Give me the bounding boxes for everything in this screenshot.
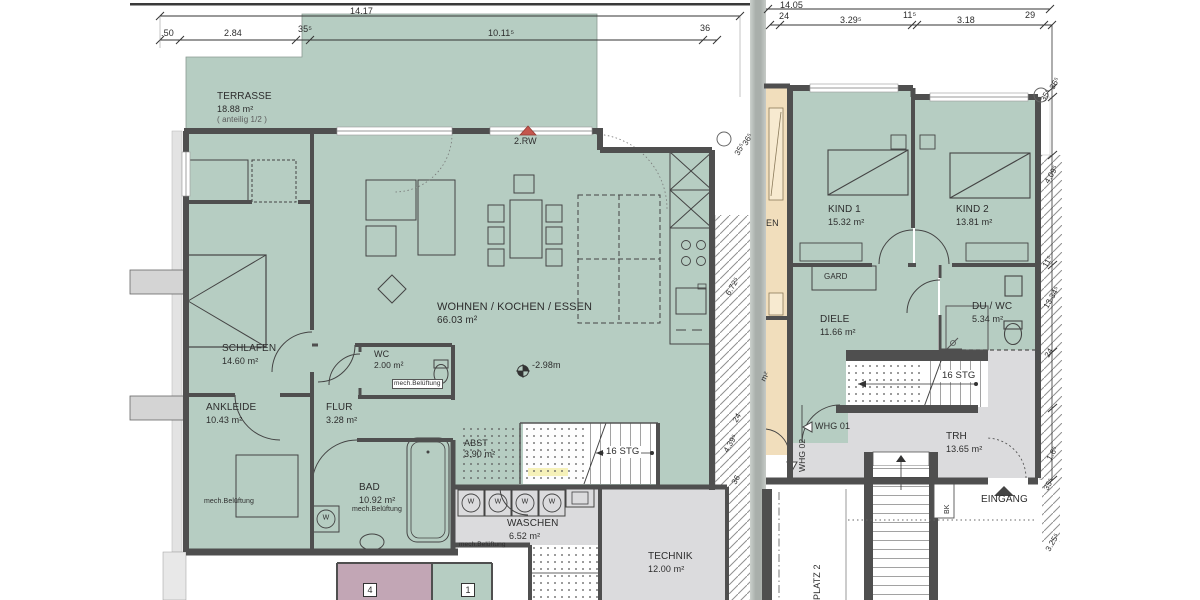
room-label-kind1: KIND 1 15.32 m² [828, 204, 864, 228]
dim-total-left: 14.17 [350, 6, 373, 17]
level-marker-label: -2.98m [532, 360, 561, 371]
dim-left-0: .50 [161, 28, 174, 39]
platz2-label: PLATZ 2 [812, 564, 823, 600]
eingang-label: EINGANG [981, 494, 1028, 507]
washer-label: W [522, 499, 529, 508]
stairs-label-right: 16 STG [940, 370, 977, 382]
room-label-flur: FLUR 3.28 m² [326, 402, 357, 426]
floor-plan-canvas: 14.17 .50 2.84 35⁵ 10.11⁵ 36 TERRASSE 18… [0, 0, 1200, 600]
room-label-diele: DIELE 11.66 m² [820, 314, 856, 338]
bk-label: BK [944, 504, 953, 514]
dim-right-2: 11⁵ [903, 10, 916, 21]
washer-label: W [495, 499, 502, 508]
floor-plan-drawing [0, 0, 1200, 600]
dim-right-4: 29 [1025, 10, 1035, 21]
whg02-label: WHG 02 [797, 439, 808, 472]
room-label-trh: TRH 13.65 m² [946, 431, 982, 455]
room-label-waschen: WASCHEN 6.52 m² [507, 518, 558, 542]
washer-label: W [468, 499, 475, 508]
washer-label: W [323, 515, 330, 524]
dim-left-3: 10.11⁵ [488, 28, 514, 39]
room-label-duwc: DU / WC 5.34 m² [972, 301, 1012, 325]
room-label-ankleide: ANKLEIDE 10.43 m² [206, 402, 256, 426]
unit-number-4: 4 [363, 583, 377, 597]
vent-label-ankleide: mech.Belüftung [204, 498, 254, 507]
whg01-label: WHG 01 [815, 421, 850, 432]
room-label-kind2: KIND 2 13.81 m² [956, 204, 992, 228]
cut-room-label: EN [766, 218, 779, 229]
dim-left-1: 2.84 [224, 28, 242, 39]
vent-label-wc: mech.Belüftung [392, 379, 443, 389]
dim-left-4: 36 [700, 23, 710, 34]
room-label-wc: WC 2.00 m² [374, 349, 404, 371]
gard-label: GARD [824, 272, 848, 282]
dim-total-right: 14.05 [780, 0, 803, 11]
washer-label: W [549, 499, 556, 508]
room-label-terrasse: TERRASSE 18.88 m² ( anteilig 1/2 ) [217, 91, 272, 125]
room-label-bad: BAD 10.92 m² [359, 482, 395, 506]
room-label-technik: TECHNIK 12.00 m² [648, 551, 693, 575]
stairs-label-left: 16 STG [604, 446, 641, 458]
vent-label-bad: mech.Belüftung [352, 506, 402, 515]
dim-right-0: 24 [779, 11, 789, 22]
room-label-wohnen: WOHNEN / KOCHEN / ESSEN 66.03 m² [437, 301, 592, 327]
dim-right-1: 3.29⁵ [840, 15, 862, 26]
dim-left-2: 35⁵ [298, 24, 312, 35]
escape-route-label: 2.RW [514, 136, 537, 147]
room-label-schlafen: SCHLAFEN 14.60 m² [222, 343, 276, 367]
dim-right-3: 3.18 [957, 15, 975, 26]
vent-label-waschen: mech.Belüftung [459, 541, 506, 549]
room-label-abst: ABST 3.90 m² [464, 438, 495, 461]
unit-number-1: 1 [461, 583, 475, 597]
